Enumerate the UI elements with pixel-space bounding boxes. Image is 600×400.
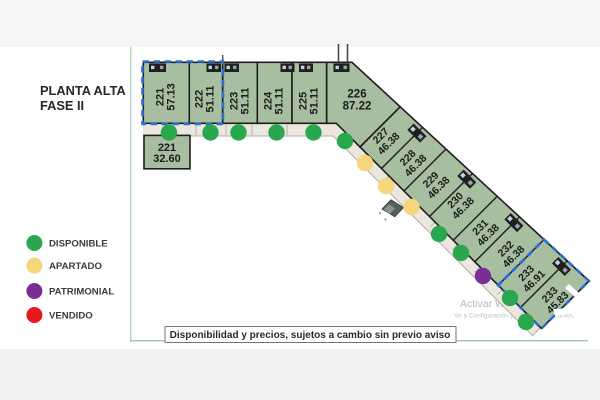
svg-text:VENDIDO: VENDIDO xyxy=(49,311,93,322)
svg-text:Disponibilidad y precios, suje: Disponibilidad y precios, sujetos a camb… xyxy=(170,330,451,341)
svg-text:51.11: 51.11 xyxy=(274,88,286,115)
svg-text:51.11: 51.11 xyxy=(309,88,321,115)
svg-text:PATRIMONIAL: PATRIMONIAL xyxy=(49,287,114,298)
svg-text:APARTADO: APARTADO xyxy=(49,261,102,272)
svg-text:87.22: 87.22 xyxy=(343,101,372,113)
svg-text:FASE II: FASE II xyxy=(40,98,84,113)
svg-text:DISPONIBLE: DISPONIBLE xyxy=(49,239,108,250)
svg-text:32.60: 32.60 xyxy=(153,153,181,165)
svg-text:51.11: 51.11 xyxy=(240,88,252,115)
svg-text:51.11: 51.11 xyxy=(205,86,217,113)
svg-text:PLANTA ALTA: PLANTA ALTA xyxy=(40,83,126,98)
svg-text:226: 226 xyxy=(347,89,366,101)
svg-text:57.13: 57.13 xyxy=(166,83,178,111)
